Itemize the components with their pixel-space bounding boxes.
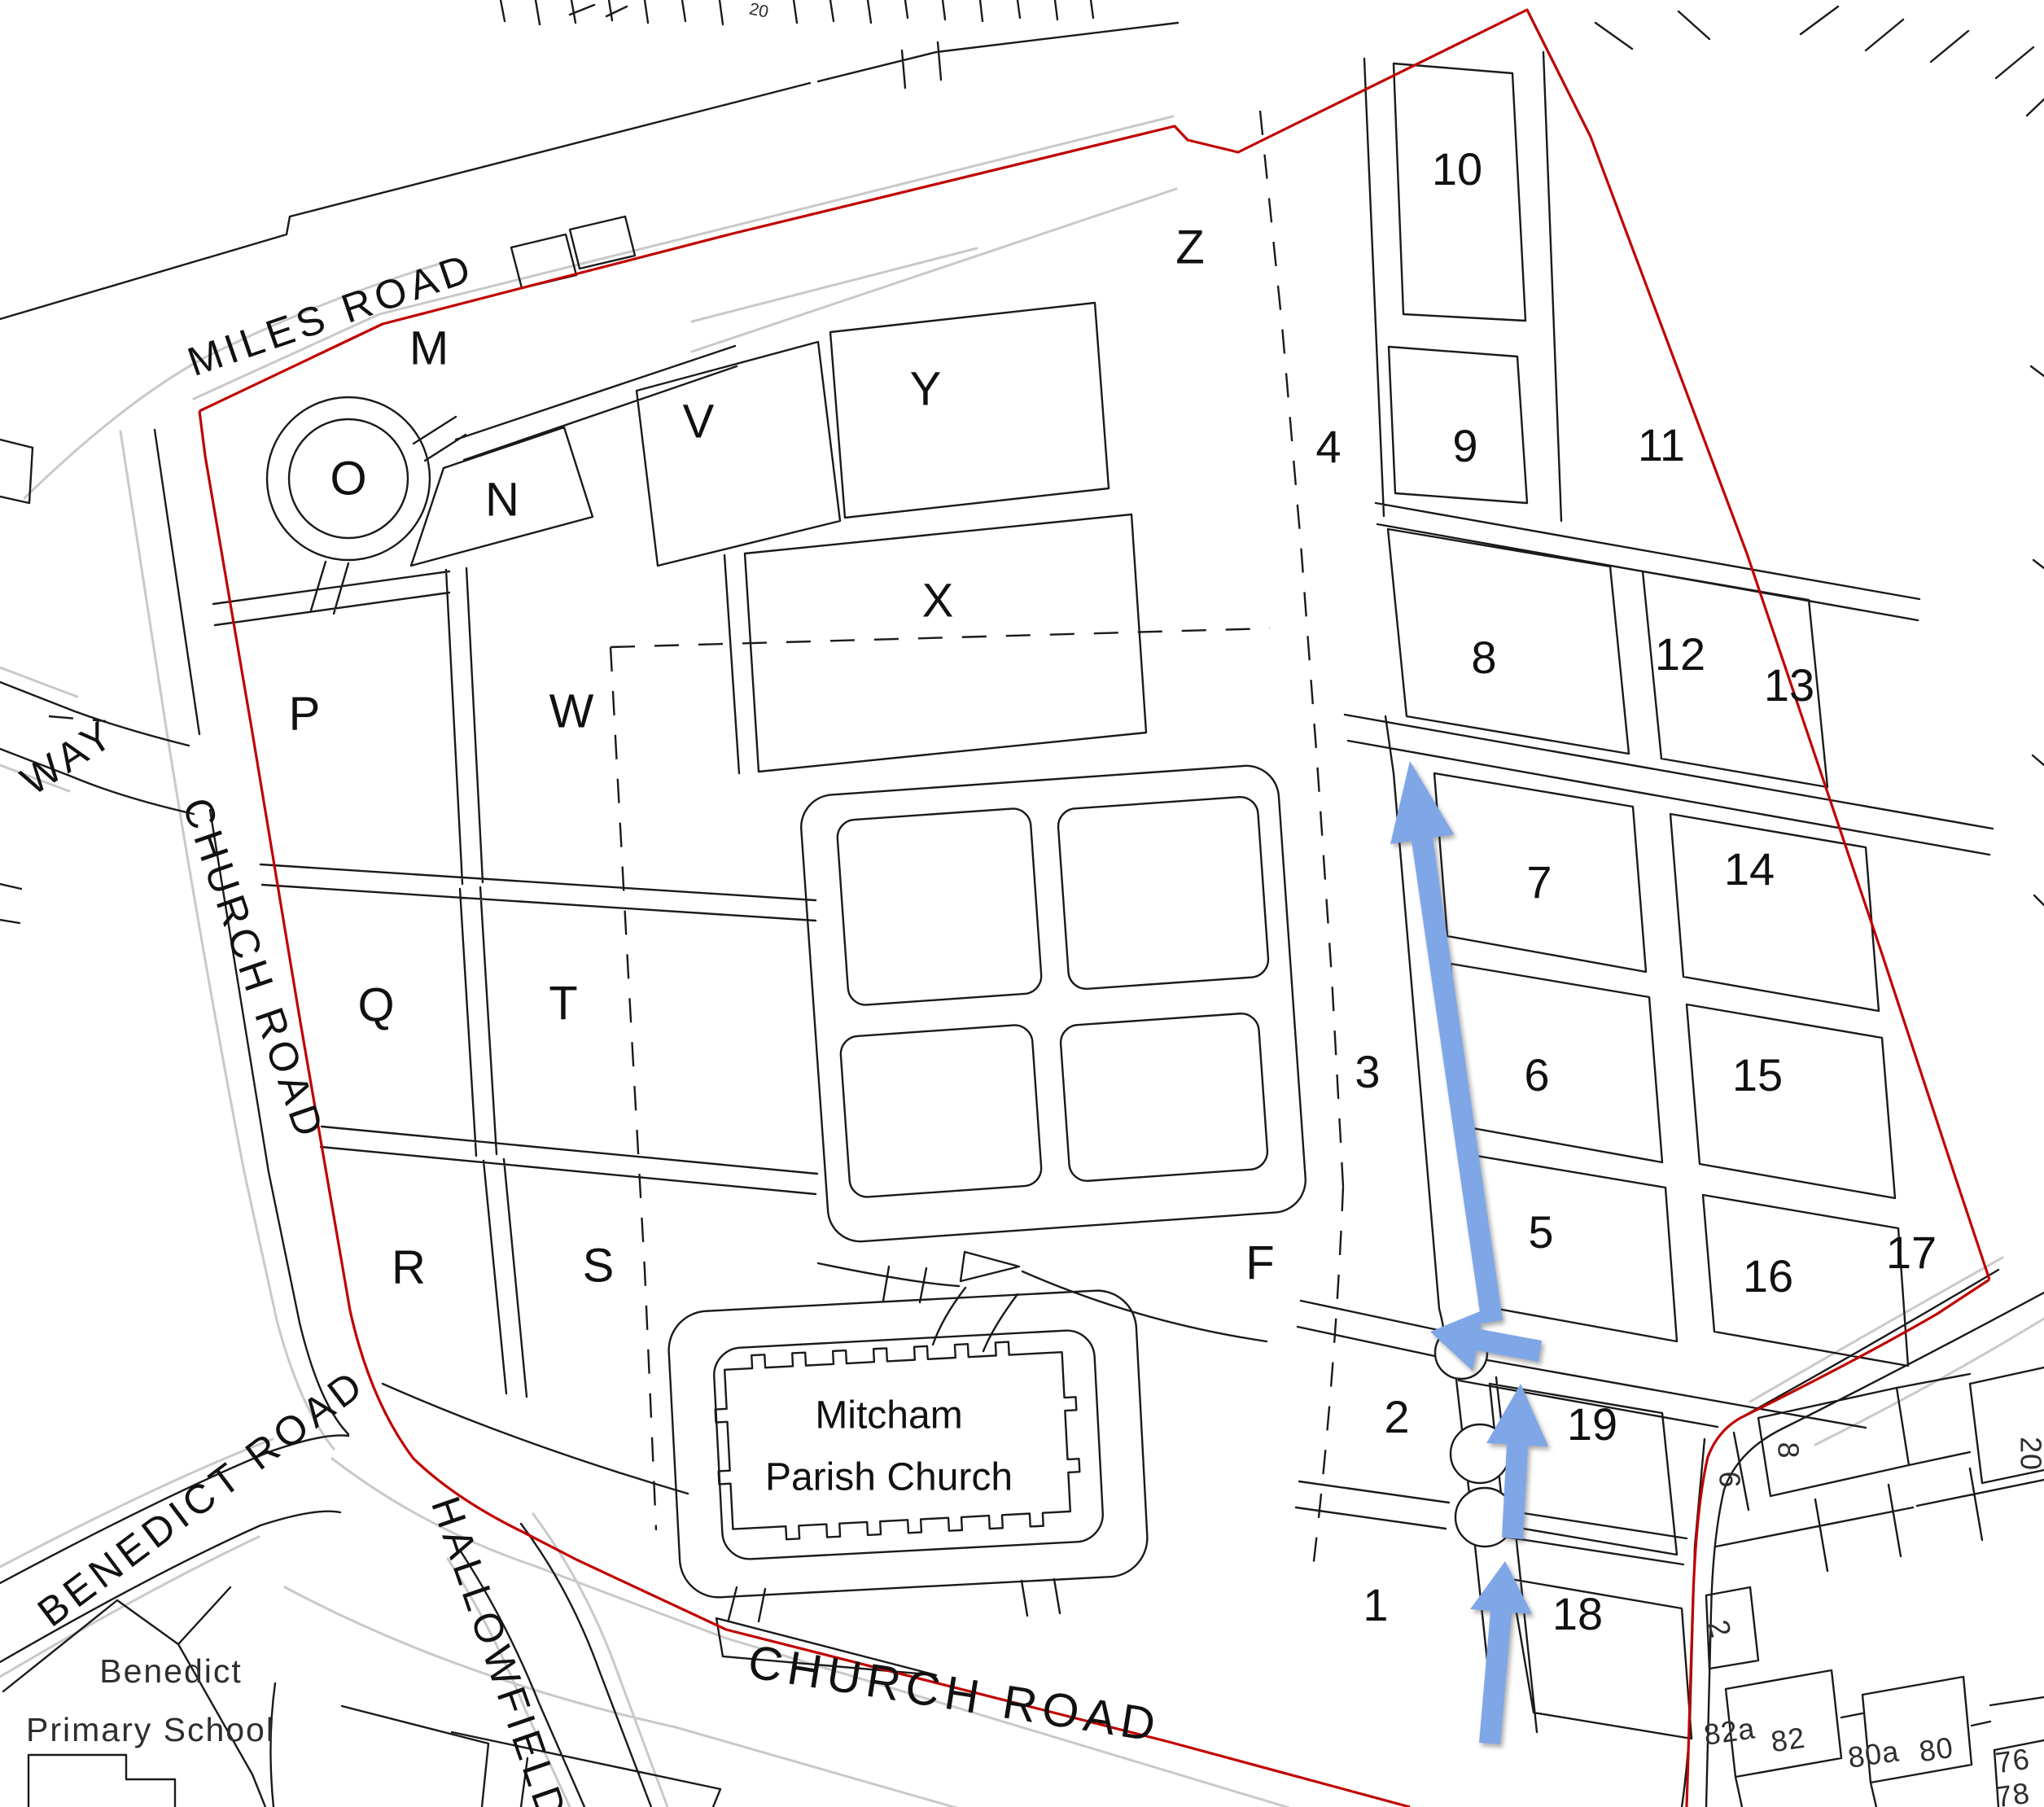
- section-label-t: T: [549, 977, 577, 1030]
- section-number-18: 18: [1552, 1588, 1603, 1639]
- section-number-1: 1: [1363, 1579, 1388, 1630]
- road-casing-lines: [0, 116, 2044, 1807]
- section-number-15: 15: [1732, 1049, 1783, 1100]
- section-number-6: 6: [1524, 1049, 1549, 1100]
- school-name-line1: Benedict: [99, 1652, 243, 1690]
- section-label-p: P: [289, 687, 321, 740]
- section-label-v: V: [683, 395, 715, 448]
- road-label-church-road-west: CHURCH ROAD: [173, 792, 334, 1146]
- central-block-ne: [1057, 796, 1270, 991]
- section-number-5: 5: [1528, 1206, 1553, 1258]
- road-label-church-road-south: CHURCH ROAD: [745, 1635, 1165, 1752]
- road-label-hallowfield-way: HALLOWFIELD: [422, 1491, 576, 1807]
- house-number-80: 80: [1917, 1730, 1955, 1768]
- cemetery-plan-map: M O N V Y X Z P W Q T R S F 1 2 3 4 5 6 …: [0, 0, 2044, 1807]
- section-number-11: 11: [1638, 419, 1685, 470]
- school-name-line2: Primary School: [26, 1711, 275, 1748]
- section-label-y: Y: [910, 362, 942, 415]
- house-number-82: 82: [1769, 1721, 1807, 1758]
- section-number-4: 4: [1315, 421, 1341, 472]
- church-name-line1: Mitcham: [815, 1394, 962, 1437]
- section-number-9: 9: [1452, 420, 1477, 471]
- section-label-f: F: [1245, 1236, 1274, 1289]
- section-number-8: 8: [1471, 632, 1496, 683]
- road-label-benedict-road: BENEDICT ROAD: [29, 1360, 374, 1636]
- route-arrow-long-north-icon: [1390, 761, 1503, 1324]
- central-block-nw: [836, 807, 1042, 1006]
- section-label-r: R: [392, 1240, 426, 1293]
- section-number-12: 12: [1655, 628, 1705, 680]
- house-number-6: 6: [1713, 1471, 1746, 1488]
- section-number-10: 10: [1432, 143, 1482, 195]
- house-number-82a: 82a: [1701, 1711, 1757, 1751]
- section-number-14: 14: [1724, 843, 1775, 895]
- church-building-outline: [712, 1338, 1082, 1542]
- route-arrows: [1390, 761, 1548, 1744]
- section-label-q: Q: [357, 978, 394, 1031]
- central-block-se: [1060, 1013, 1269, 1183]
- section-label-w: W: [549, 685, 594, 737]
- section-label-s: S: [583, 1239, 615, 1292]
- section-label-o: O: [330, 452, 366, 505]
- house-number-80a: 80a: [1845, 1734, 1901, 1774]
- section-number-17: 17: [1886, 1227, 1937, 1278]
- section-label-m: M: [409, 322, 449, 374]
- church-name-line2: Parish Church: [765, 1456, 1013, 1499]
- section-number-13: 13: [1764, 659, 1814, 711]
- house-number-78: 78: [1994, 1776, 2032, 1807]
- churchyard-ring-outer: [667, 1289, 1149, 1599]
- section-label-n: N: [485, 473, 519, 526]
- section-number-16: 16: [1743, 1250, 1793, 1302]
- section-number-3: 3: [1355, 1046, 1380, 1097]
- map-stage: M O N V Y X Z P W Q T R S F 1 2 3 4 5 6 …: [0, 0, 2044, 1807]
- section-number-19: 19: [1567, 1398, 1617, 1450]
- section-number-7: 7: [1526, 856, 1552, 908]
- house-number-8: 8: [1771, 1442, 1805, 1459]
- house-number-top-20: 20: [747, 0, 770, 22]
- central-block-sw: [839, 1024, 1042, 1198]
- house-number-20: 20: [2014, 1437, 2044, 1471]
- section-number-2: 2: [1384, 1391, 1409, 1442]
- map-linework: [0, 0, 2044, 1807]
- house-number-76: 76: [1994, 1742, 2032, 1779]
- section-label-x: X: [922, 574, 954, 627]
- section-label-z: Z: [1175, 221, 1204, 273]
